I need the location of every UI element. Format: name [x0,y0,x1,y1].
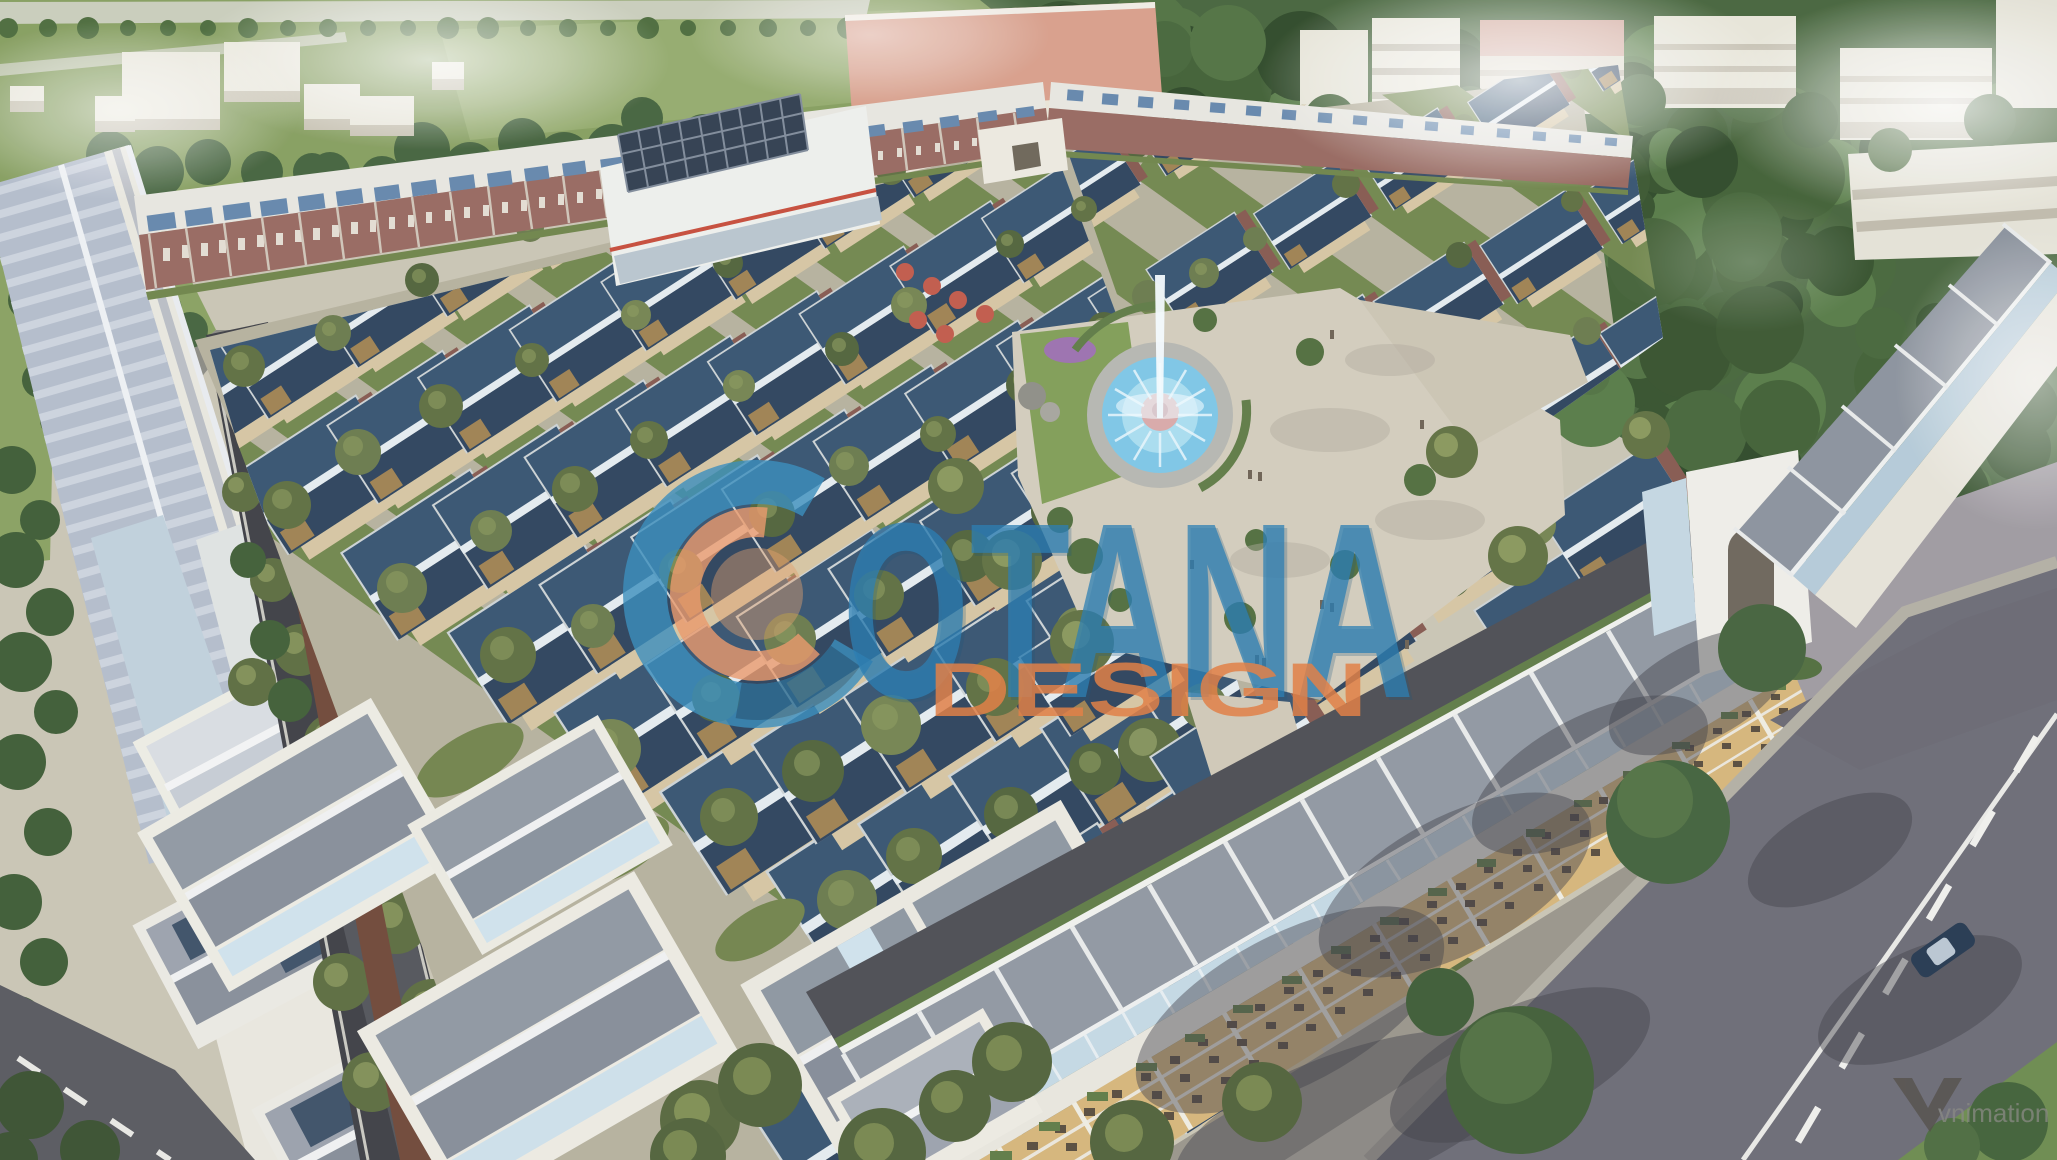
svg-text:DESIGN: DESIGN [928,648,1368,733]
svg-text:vnimation: vnimation [1938,1098,2049,1128]
